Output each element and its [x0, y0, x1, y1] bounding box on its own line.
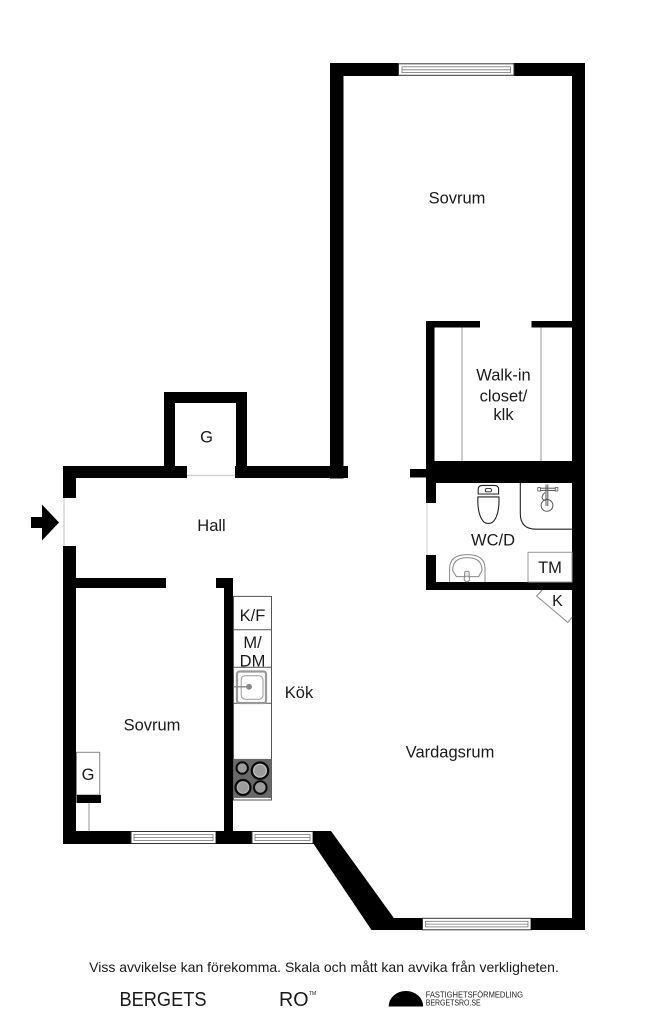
svg-text:klk: klk [493, 406, 514, 424]
svg-text:Vardagsrum: Vardagsrum [406, 744, 495, 762]
svg-text:TM: TM [538, 559, 562, 577]
svg-text:Sovrum: Sovrum [124, 717, 181, 735]
svg-text:Sovrum: Sovrum [429, 190, 486, 208]
svg-text:WC/D: WC/D [471, 532, 515, 550]
svg-text:K/F: K/F [240, 607, 266, 625]
svg-text:Kök: Kök [285, 684, 314, 702]
svg-text:DM: DM [240, 653, 266, 671]
svg-text:Walk-in: Walk-in [476, 367, 530, 385]
svg-text:BERGETSRO.SE: BERGETSRO.SE [426, 998, 481, 1008]
svg-text:Viss avvikelse kan förekomma.: Viss avvikelse kan förekomma. Skala och … [89, 959, 559, 975]
svg-text:closet/: closet/ [480, 388, 528, 406]
svg-text:Hall: Hall [197, 517, 225, 535]
svg-text:K: K [552, 593, 563, 610]
svg-text:G: G [82, 766, 95, 784]
svg-text:M/: M/ [243, 634, 262, 652]
svg-text:G: G [200, 429, 213, 447]
svg-text:BERGETS: BERGETS [120, 988, 207, 1011]
svg-text:RO: RO [279, 988, 309, 1011]
svg-text:TM: TM [309, 991, 316, 997]
